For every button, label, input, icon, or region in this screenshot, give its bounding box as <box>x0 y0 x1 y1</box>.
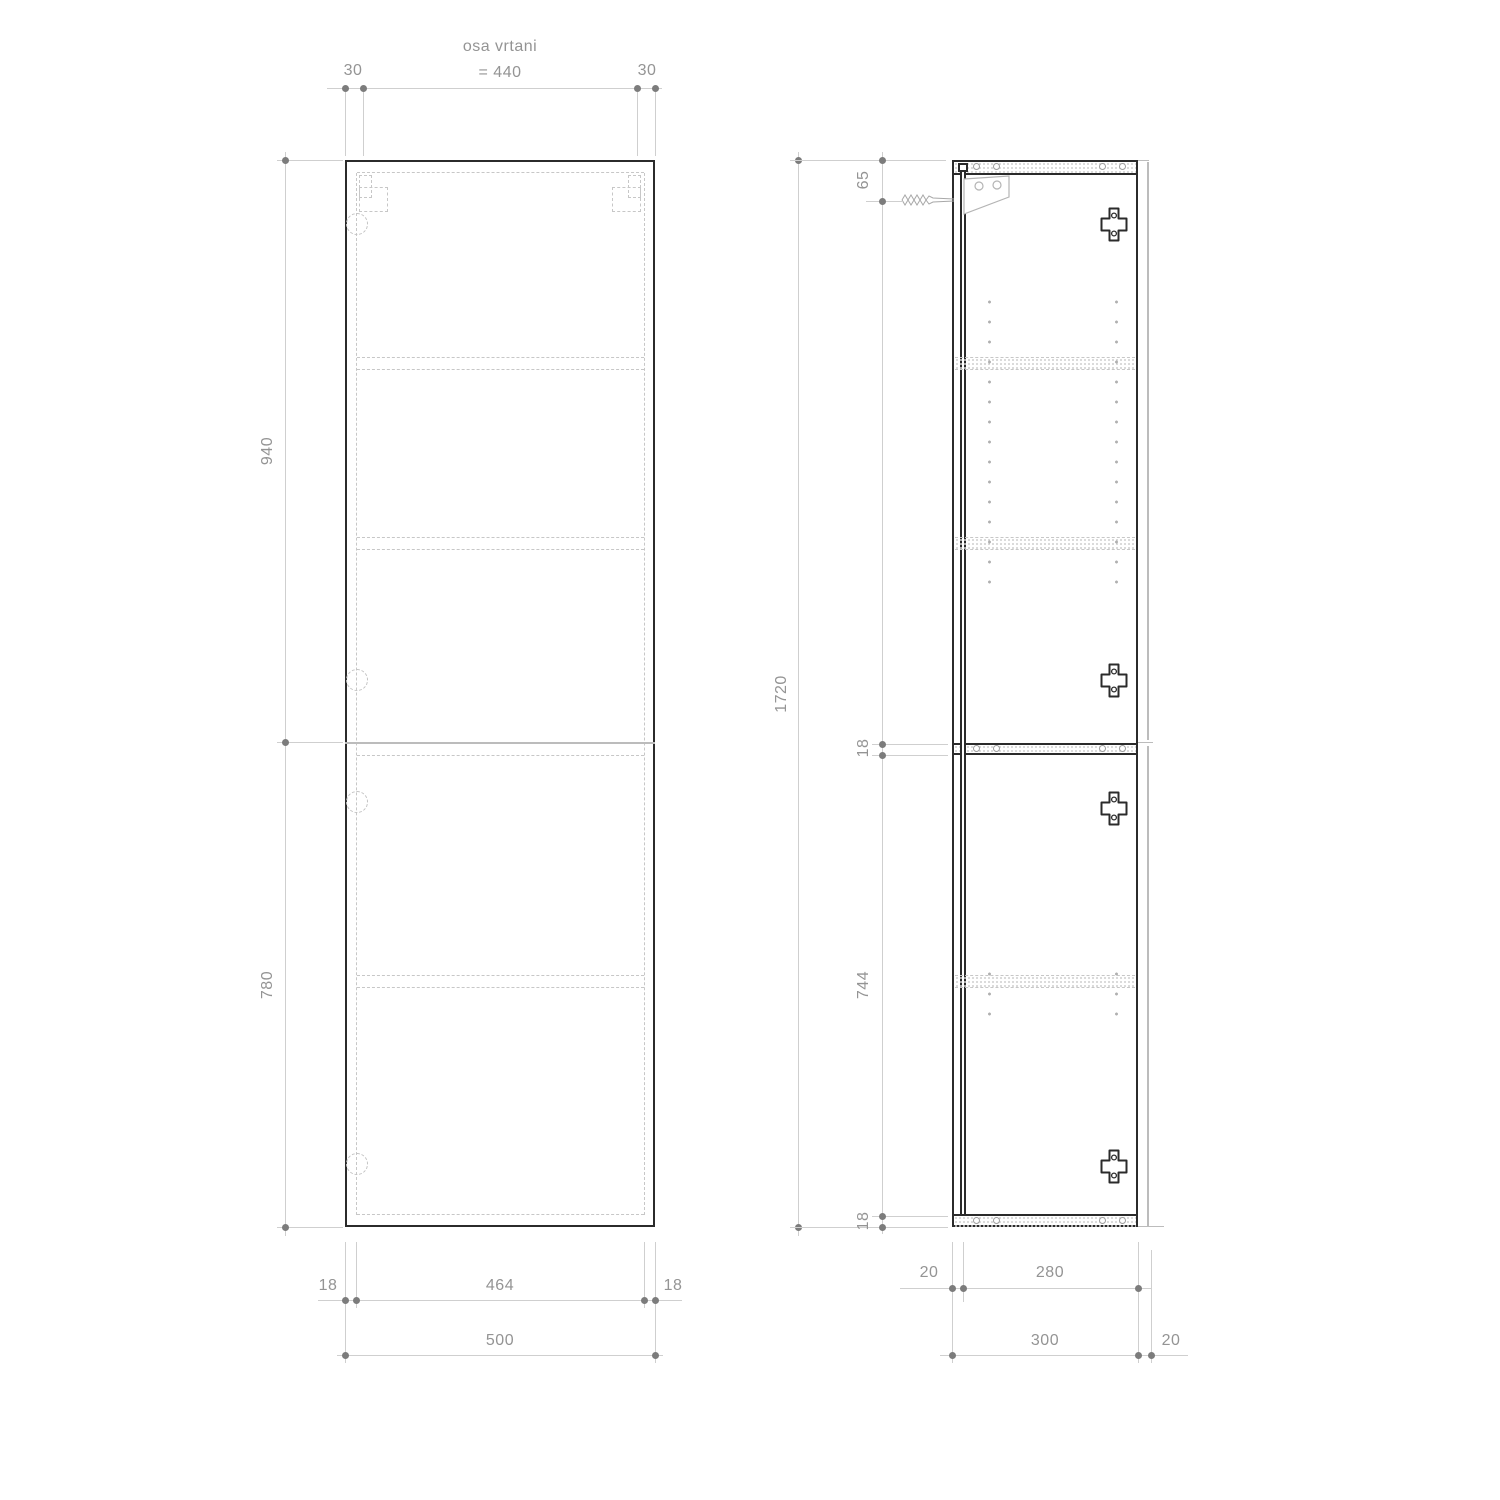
screw-hole <box>1099 1217 1106 1224</box>
dim-lower-inner-height: 744 <box>855 971 873 999</box>
technical-drawing-canvas: 30 osa vrtani = 440 30 940 780 18 464 18… <box>0 0 1500 1500</box>
hinge-cup-icon <box>346 669 368 691</box>
hidden-shelf-upper-1 <box>357 357 644 370</box>
dim-left-panel-thickness: 18 <box>319 1277 338 1295</box>
dim-overall-height: 1720 <box>773 675 791 713</box>
screw-hole <box>993 163 1000 170</box>
hidden-shelf-upper-2 <box>357 537 644 550</box>
screw-hole <box>973 745 980 752</box>
back-panel-cap <box>958 163 968 172</box>
dim-carcass-depth: 300 <box>1031 1332 1059 1350</box>
dim-lower-door-height: 780 <box>259 971 277 999</box>
hidden-right-side-panel <box>644 173 645 1215</box>
screw-hole <box>1119 745 1126 752</box>
hanging-bracket-hidden-right <box>612 187 641 212</box>
shelf-pin-holes-column <box>987 286 992 586</box>
dim-left-edge-to-axis: 30 <box>344 62 363 80</box>
dim-door-offset: 20 <box>1162 1332 1181 1350</box>
shelf-pin-holes-column <box>987 958 992 1020</box>
dim-overall-width: 500 <box>486 1332 514 1350</box>
screw-hole <box>973 1217 980 1224</box>
hinge-cup-icon <box>346 213 368 235</box>
hidden-divider-bottom <box>357 755 644 756</box>
upper-door-edge <box>1147 162 1149 740</box>
dim-axis-spacing: = 440 <box>479 64 522 82</box>
screw-hole <box>1119 163 1126 170</box>
screw-hole <box>1119 1217 1126 1224</box>
hidden-bottom-panel <box>357 1214 644 1215</box>
divider-panel-section <box>954 743 1136 755</box>
door-gap-line <box>345 742 655 744</box>
shelf-section-lower <box>955 975 1135 988</box>
hinge-plate-icon <box>1100 207 1128 242</box>
dim-top-to-mount: 65 <box>855 171 873 190</box>
door-edge-connector <box>1138 742 1153 743</box>
door-edge-connector <box>1138 1226 1164 1227</box>
dim-right-panel-thickness: 18 <box>664 1277 683 1295</box>
hanging-bracket-icon <box>963 174 1011 216</box>
shelf-pin-holes-column <box>1114 286 1119 586</box>
dim-divider-thickness: 18 <box>855 739 873 758</box>
hinge-plate-icon <box>1100 791 1128 826</box>
screw-hole <box>973 163 980 170</box>
hinge-plate-icon <box>1100 1149 1128 1184</box>
hidden-shelf-lower <box>357 975 644 988</box>
door-edge-connector <box>1138 160 1149 161</box>
shelf-section-upper-2 <box>955 537 1135 550</box>
lower-door-edge <box>1147 746 1149 1227</box>
screw-hole <box>1099 163 1106 170</box>
dim-axis-to-right-edge: 30 <box>638 62 657 80</box>
screw-hole <box>1099 745 1106 752</box>
dim-inner-width: 464 <box>486 1277 514 1295</box>
shelf-section-upper-1 <box>955 357 1135 370</box>
dim-back-recess: 20 <box>920 1264 939 1282</box>
front-cabinet-outline <box>345 160 655 1227</box>
hinge-cup-icon <box>346 791 368 813</box>
hinge-plate-icon <box>1100 663 1128 698</box>
drill-axis-title: osa vrtani <box>463 38 537 56</box>
shelf-pin-holes-column <box>1114 958 1119 1020</box>
hidden-left-side-panel <box>356 173 357 1215</box>
dim-upper-door-height: 940 <box>259 437 277 465</box>
dim-inner-depth: 280 <box>1036 1264 1064 1282</box>
hinge-cup-icon <box>346 1153 368 1175</box>
dim-bottom-panel-thickness: 18 <box>855 1212 873 1231</box>
hanging-bracket-hidden-left <box>359 187 388 212</box>
bottom-panel-section <box>954 1214 1136 1227</box>
screw-hole <box>993 1217 1000 1224</box>
screw-hole <box>993 745 1000 752</box>
back-panel <box>960 164 966 1214</box>
hidden-top-panel <box>357 172 644 173</box>
wall-plug-icon <box>900 191 956 209</box>
